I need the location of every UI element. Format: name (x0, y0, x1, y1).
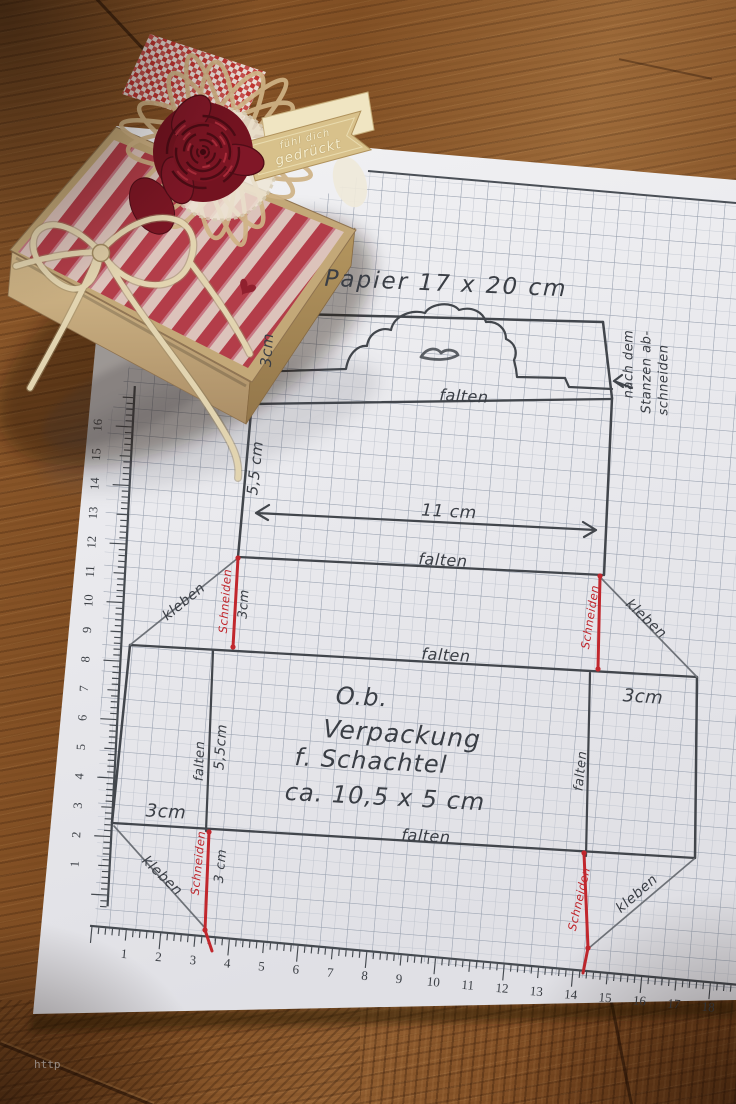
ruler-number: 9 (395, 971, 403, 987)
inner-fold-left-label: falten (192, 741, 208, 782)
title-line1: O.b. (335, 682, 389, 713)
fold-label-b: falten (418, 549, 468, 571)
watermark-text: http (34, 1058, 61, 1071)
ruler-number: 8 (78, 656, 92, 663)
ruler-number: 11 (83, 565, 98, 578)
ruler-number: 2 (155, 949, 163, 965)
ruler-number: 5 (258, 958, 266, 974)
tab-height-top-label: 3cm (235, 589, 252, 620)
punch-note-line1: nach dem (622, 330, 637, 399)
twine-knot (93, 245, 110, 262)
ruler-number: 7 (77, 685, 91, 692)
ruler-number: 12 (495, 980, 509, 996)
ruler-number: 1 (120, 946, 128, 962)
ruler-number: 16 (632, 992, 647, 1008)
ruler-number: 6 (75, 714, 89, 721)
ruler-number: 3 (71, 802, 85, 809)
ruler-number: 1 (68, 861, 82, 868)
ruler-number: 2 (69, 831, 83, 838)
ruler-number: 8 (361, 968, 369, 984)
flap-height-label: 3cm (257, 332, 277, 367)
punch-note-line3: schneiden (657, 345, 672, 416)
punch-note-line2: Stanzen ab- (640, 330, 655, 413)
ruler-number: 13 (86, 506, 101, 519)
inner-height-label: 5,5cm (211, 723, 230, 770)
ruler-number: 12 (84, 536, 99, 549)
ruler-number: 3 (189, 952, 197, 968)
ruler-number: 18 (701, 999, 715, 1015)
ruler-number: 9 (80, 626, 94, 633)
ruler-number: 17 (667, 995, 682, 1011)
fold-label-c: falten (421, 644, 471, 666)
panel-width-right-label: 3cm (622, 685, 664, 709)
ruler-number: 5 (74, 744, 88, 751)
ruler-number: 15 (598, 989, 612, 1005)
pattern-sheet-photo: 1234567891011121314151617181234567891011… (0, 0, 736, 1104)
fold-label-a: falten (439, 385, 489, 407)
ruler-number: 13 (529, 983, 543, 999)
panel-width-left-label: 3cm (145, 800, 186, 823)
photo-scene: 1234567891011121314151617181234567891011… (0, 0, 736, 1104)
ruler-number: 10 (426, 974, 440, 990)
ruler-number: 11 (461, 977, 475, 993)
ruler-number: 10 (81, 594, 96, 607)
ruler-number: 14 (564, 986, 579, 1002)
strip-width-label: 11 cm (421, 501, 477, 524)
fold-label-d: falten (401, 825, 451, 847)
